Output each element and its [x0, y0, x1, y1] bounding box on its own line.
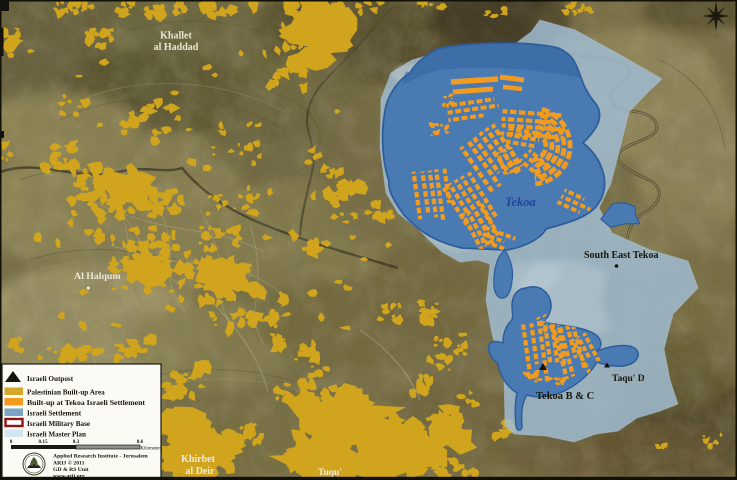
- svg-text:al Haddad: al Haddad: [154, 42, 199, 53]
- svg-text:Israeli Military Base: Israeli Military Base: [27, 420, 90, 428]
- svg-text:Israeli Master Plan: Israeli Master Plan: [27, 431, 86, 439]
- svg-text:South East Tekoa: South East Tekoa: [584, 250, 658, 261]
- svg-text:Applied Research Institute - J: Applied Research Institute - Jerusalem: [53, 454, 148, 460]
- svg-text:Khallet: Khallet: [160, 31, 192, 42]
- svg-text:Al Halqum: Al Halqum: [74, 271, 121, 282]
- svg-text:Tuqu': Tuqu': [318, 468, 342, 478]
- svg-text:0.15: 0.15: [38, 439, 47, 445]
- svg-text:Israeli Outpost: Israeli Outpost: [27, 375, 74, 383]
- svg-text:Taqu' D: Taqu' D: [612, 374, 645, 384]
- svg-text:Palestinian Built-up Area: Palestinian Built-up Area: [27, 389, 105, 397]
- svg-text:GD & RS Unit: GD & RS Unit: [53, 467, 89, 473]
- svg-text:ARIJ © 2011: ARIJ © 2011: [53, 460, 85, 467]
- svg-text:0.6: 0.6: [137, 439, 144, 445]
- svg-text:Tekoa B & C: Tekoa B & C: [536, 391, 594, 402]
- svg-text:0.3: 0.3: [73, 439, 80, 445]
- svg-text:Tekoa: Tekoa: [505, 195, 536, 209]
- svg-text:Kilometers: Kilometers: [141, 446, 162, 451]
- svg-text:Khirbet: Khirbet: [181, 454, 216, 465]
- svg-text:Israeli Settlement: Israeli Settlement: [27, 410, 82, 418]
- svg-text:0: 0: [10, 439, 13, 445]
- svg-text:al Deir: al Deir: [185, 466, 215, 477]
- svg-text:Built-up at Tekoa Israeli Sett: Built-up at Tekoa Israeli Settlement: [27, 399, 146, 407]
